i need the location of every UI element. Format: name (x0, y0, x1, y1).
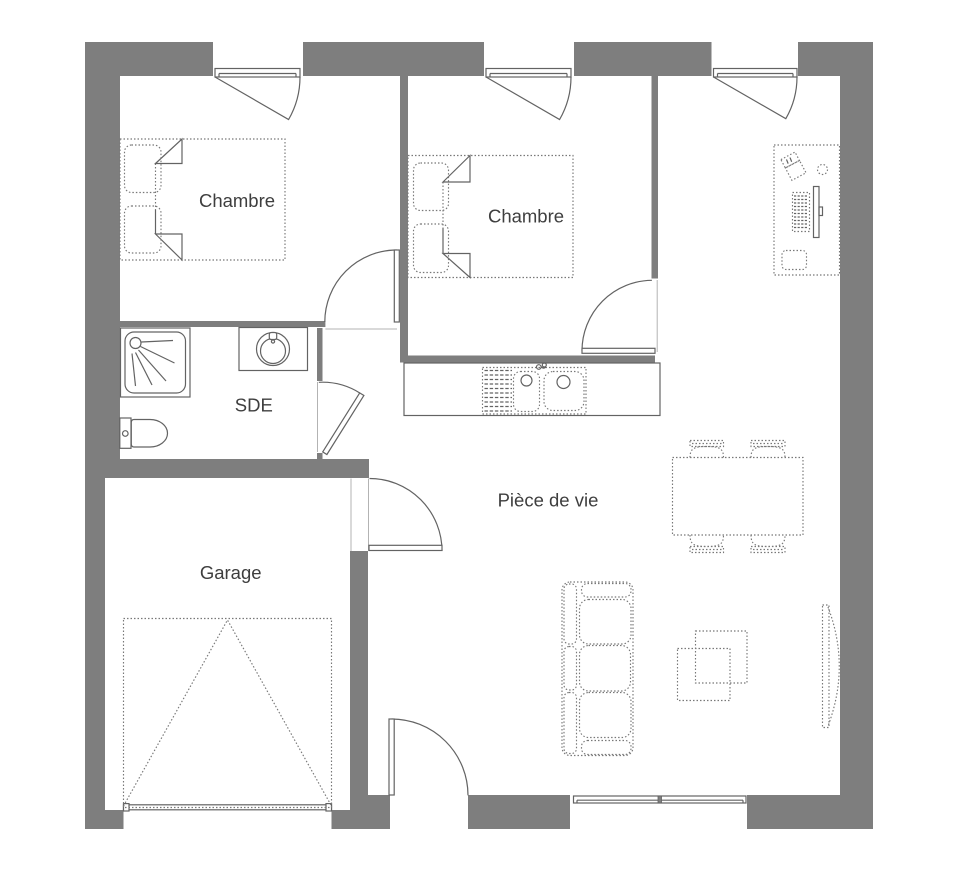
svg-text:Chambre: Chambre (199, 190, 275, 211)
svg-text:Garage: Garage (200, 562, 262, 583)
svg-text:SDE: SDE (235, 395, 273, 416)
svg-text:Chambre: Chambre (488, 206, 564, 227)
svg-text:Pièce de vie: Pièce de vie (498, 490, 599, 511)
